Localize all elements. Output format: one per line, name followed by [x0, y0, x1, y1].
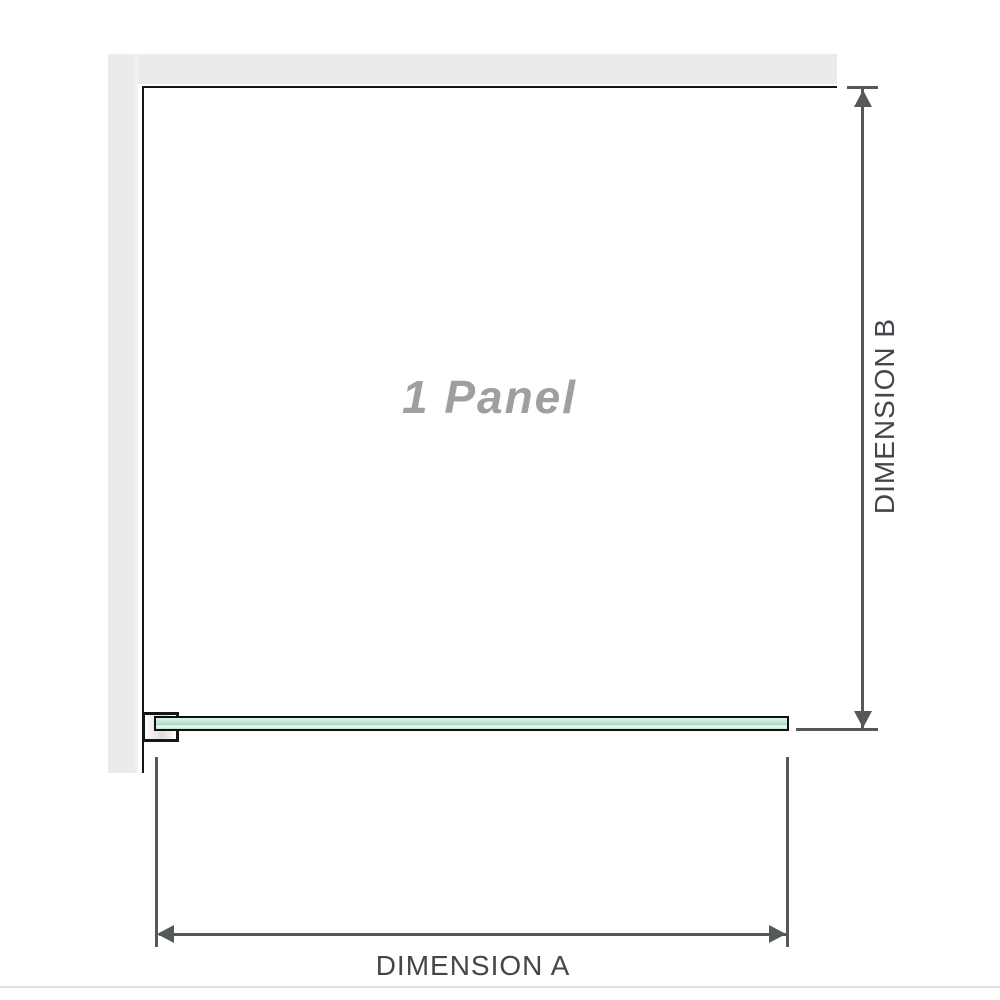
dimension-b-bottom-tick: [796, 728, 878, 731]
dimension-b-line: [861, 89, 864, 729]
panel-count-label: 1 Panel: [142, 370, 837, 424]
dimension-a-left-extension: [155, 757, 158, 947]
wall-left: [108, 54, 138, 773]
shower-area-outline: [142, 86, 837, 773]
arrow-down-icon: [854, 711, 872, 728]
bottom-divider: [0, 986, 1000, 988]
dimension-a-right-extension: [786, 757, 789, 947]
panel-diagram: 1 Panel DIMENSION B DIMENSION A: [0, 0, 1000, 1000]
glass-panel: [154, 716, 789, 731]
arrow-left-icon: [157, 925, 174, 943]
wall-top: [110, 54, 837, 84]
dimension-a-label: DIMENSION A: [156, 950, 790, 982]
arrow-right-icon: [769, 925, 786, 943]
dimension-a-line: [159, 933, 787, 936]
arrow-up-icon: [854, 90, 872, 107]
dimension-b-label: DIMENSION B: [869, 318, 901, 514]
